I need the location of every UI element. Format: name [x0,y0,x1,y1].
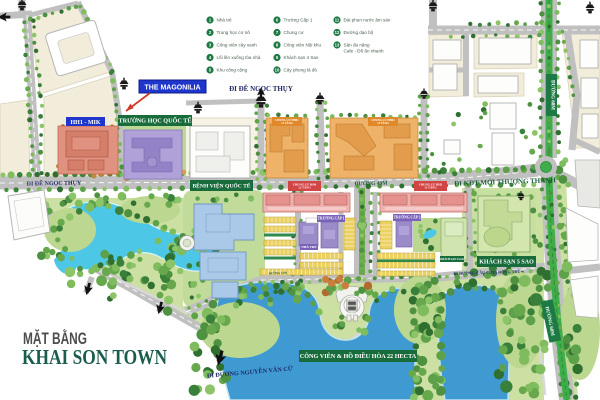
svg-text:TRƯỜNG HỌC QUỐC TẾ: TRƯỜNG HỌC QUỐC TẾ [118,117,191,125]
svg-text:12: 12 [335,30,340,35]
svg-text:Đài phun nước âm sàn: Đài phun nước âm sàn [344,18,391,23]
svg-text:KHÁCH SẠN 4 SAO: KHÁCH SẠN 4 SAO [440,258,464,261]
svg-text:Chung cư: Chung cư [284,30,304,35]
svg-text:12 TẦNG: 12 TẦNG [377,122,389,125]
svg-text:Công viên cây xanh: Công viên cây xanh [217,43,258,48]
svg-text:KHAI SON TOWN: KHAI SON TOWN [22,345,167,369]
svg-text:Trường Cấp 1: Trường Cấp 1 [284,18,313,23]
svg-text:TRƯỜNG CẤP 2: TRƯỜNG CẤP 2 [394,215,421,220]
svg-text:Trung học cơ sở: Trung học cơ sở [217,29,251,35]
svg-text:Nhà trẻ: Nhà trẻ [217,18,233,23]
svg-text:ĐI ĐÊ NGỌC THỤY: ĐI ĐÊ NGỌC THỤY [229,85,293,93]
svg-text:11: 11 [335,18,340,23]
svg-text:HH1 - MIK: HH1 - MIK [71,120,101,126]
svg-text:Sân đa năng: Sân đa năng [344,43,371,48]
svg-text:12 TẦNG: 12 TẦNG [298,185,311,190]
svg-text:Lối lên xuống tòa nhà: Lối lên xuống tòa nhà [217,55,261,60]
svg-text:12 TẦNG: 12 TẦNG [281,122,293,125]
svg-text:Khu công cộng: Khu công cộng [217,68,248,73]
svg-text:CÔNG VIÊN & HỒ ĐIỀU HÒA 22 HEC: CÔNG VIÊN & HỒ ĐIỀU HÒA 22 HECTA [300,352,417,360]
svg-text:ĐƯỜNG 68M: ĐƯỜNG 68M [550,80,556,110]
svg-text:Cây phong lá đỏ: Cây phong lá đỏ [284,67,318,73]
svg-text:NHÀ TRẺ: NHÀ TRẺ [301,244,317,249]
svg-text:13: 13 [335,43,340,48]
svg-text:Khách sạn 4 Sao: Khách sạn 4 Sao [284,55,319,60]
svg-text:Công viên Nội khu: Công viên Nội khu [284,43,322,48]
svg-text:TRƯỜNG CẤP 1: TRƯỜNG CẤP 1 [318,216,345,221]
svg-text:ĐƯỜNG 13M: ĐƯỜNG 13M [269,270,287,276]
svg-text:12 TẦNG: 12 TẦNG [424,185,437,190]
svg-text:THE MAGONILIA: THE MAGONILIA [145,85,201,92]
svg-text:Cafe - Đồ ăn nhanh: Cafe - Đồ ăn nhanh [344,49,385,54]
svg-text:Đường dạo bộ: Đường dạo bộ [344,30,374,35]
svg-text:KHÁCH SẠN 5 SAO: KHÁCH SẠN 5 SAO [479,258,534,266]
svg-text:10: 10 [275,68,280,73]
svg-text:BỆNH VIỆN QUỐC TẾ: BỆNH VIỆN QUỐC TẾ [192,181,250,189]
